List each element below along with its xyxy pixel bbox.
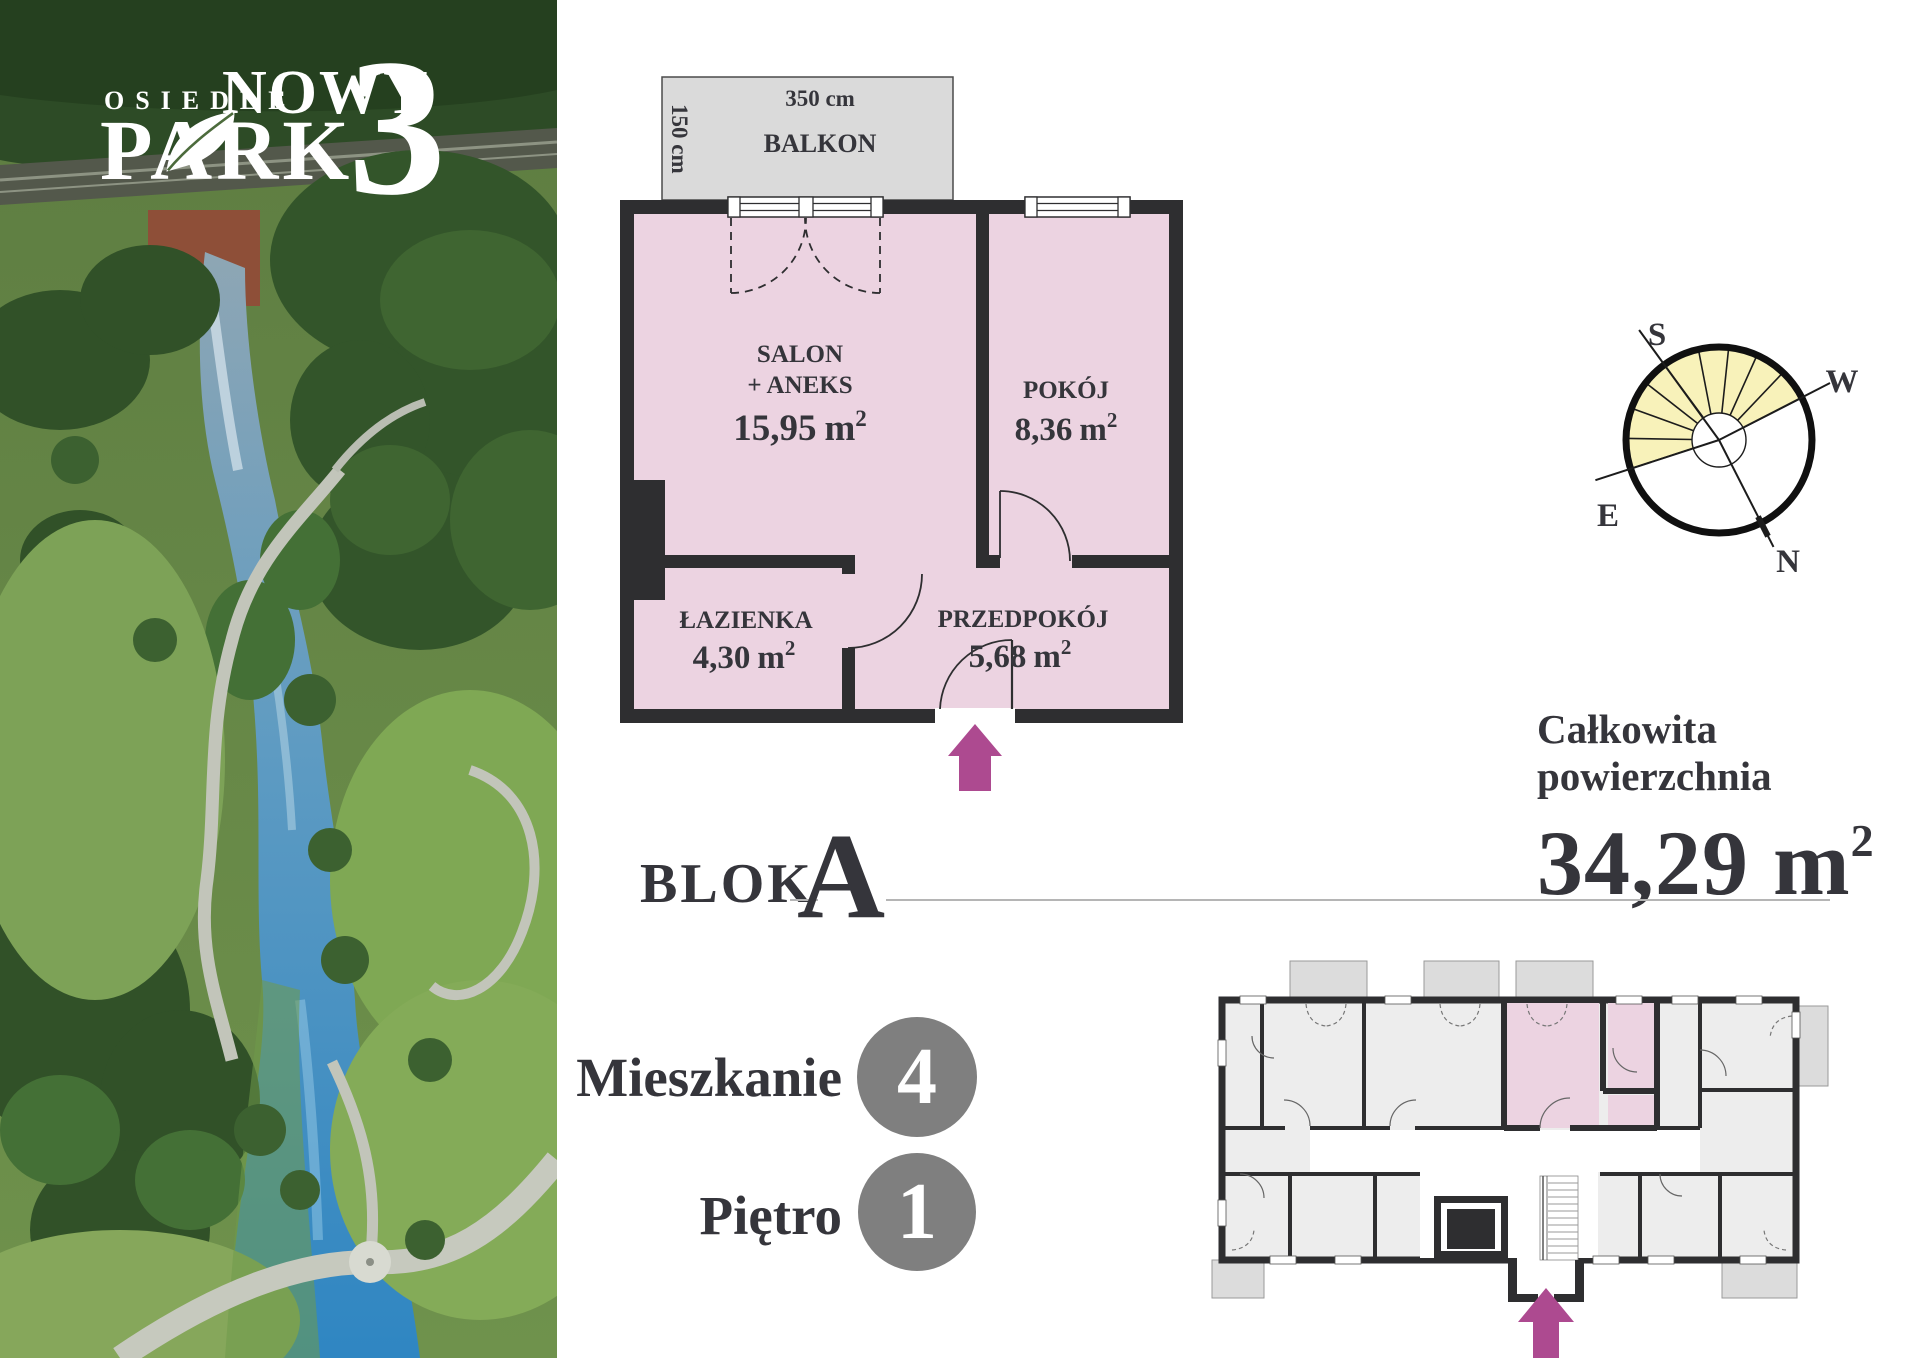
overview-elevator	[1434, 1196, 1508, 1258]
balcony-width-label: 350 cm	[785, 86, 855, 111]
compass-north-label: N	[1776, 544, 1800, 580]
balcony-depth-label: 150 cm	[667, 104, 692, 174]
svg-text:SALON: SALON	[757, 341, 843, 368]
logo: OSIEDLE NOWY PARK 3	[0, 0, 557, 300]
svg-text:POKÓJ: POKÓJ	[1023, 376, 1109, 404]
blok-value: A	[797, 816, 885, 938]
compass-east-label: E	[1597, 498, 1619, 534]
apartment-number-badge: 4	[857, 1017, 977, 1137]
brochure-page: OSIEDLE NOWY PARK 3 350 cm BALKON 150 cm	[0, 0, 1920, 1358]
entrance-arrow	[948, 724, 1002, 791]
balcony-name-label: BALKON	[764, 129, 877, 158]
svg-text:15,95m2: 15,95m2	[733, 406, 867, 449]
overview-highlighted-unit	[1507, 1003, 1657, 1128]
svg-text:5,68m2: 5,68m2	[969, 635, 1072, 675]
building-overview-plan	[1195, 950, 1855, 1358]
floor-number-badge: 1	[858, 1153, 976, 1271]
total-area-label-line2: powierzchnia	[1537, 753, 1772, 799]
park-aerial-photo: OSIEDLE NOWY PARK 3	[0, 0, 557, 1358]
apartment-floor-plan: 350 cm BALKON 150 cm	[510, 60, 1210, 800]
logo-number: 3	[348, 30, 446, 226]
balcony: 350 cm BALKON 150 cm	[662, 77, 953, 200]
svg-text:+ ANEKS: + ANEKS	[747, 372, 852, 399]
blok-label: BLOK	[640, 852, 814, 916]
svg-text:4,30m2: 4,30m2	[693, 636, 796, 676]
total-area-block: Całkowita powierzchnia 34,29 m2	[1537, 706, 1875, 916]
overview-stairs	[1540, 1176, 1578, 1260]
svg-text:ŁAZIENKA: ŁAZIENKA	[679, 607, 812, 634]
svg-text:8,36m2: 8,36m2	[1015, 408, 1118, 448]
divider-rule	[886, 899, 1830, 901]
floor-number-label: Piętro	[400, 1184, 842, 1247]
compass-south-label: S	[1648, 317, 1666, 353]
compass-west-label: W	[1826, 364, 1859, 400]
compass-rose: S W E N	[1580, 300, 1860, 590]
apartment-number-label: Mieszkanie	[400, 1046, 842, 1109]
room-window	[1025, 197, 1130, 217]
total-area-label-line1: Całkowita	[1537, 706, 1717, 752]
svg-text:PRZEDPOKÓJ: PRZEDPOKÓJ	[938, 605, 1109, 633]
